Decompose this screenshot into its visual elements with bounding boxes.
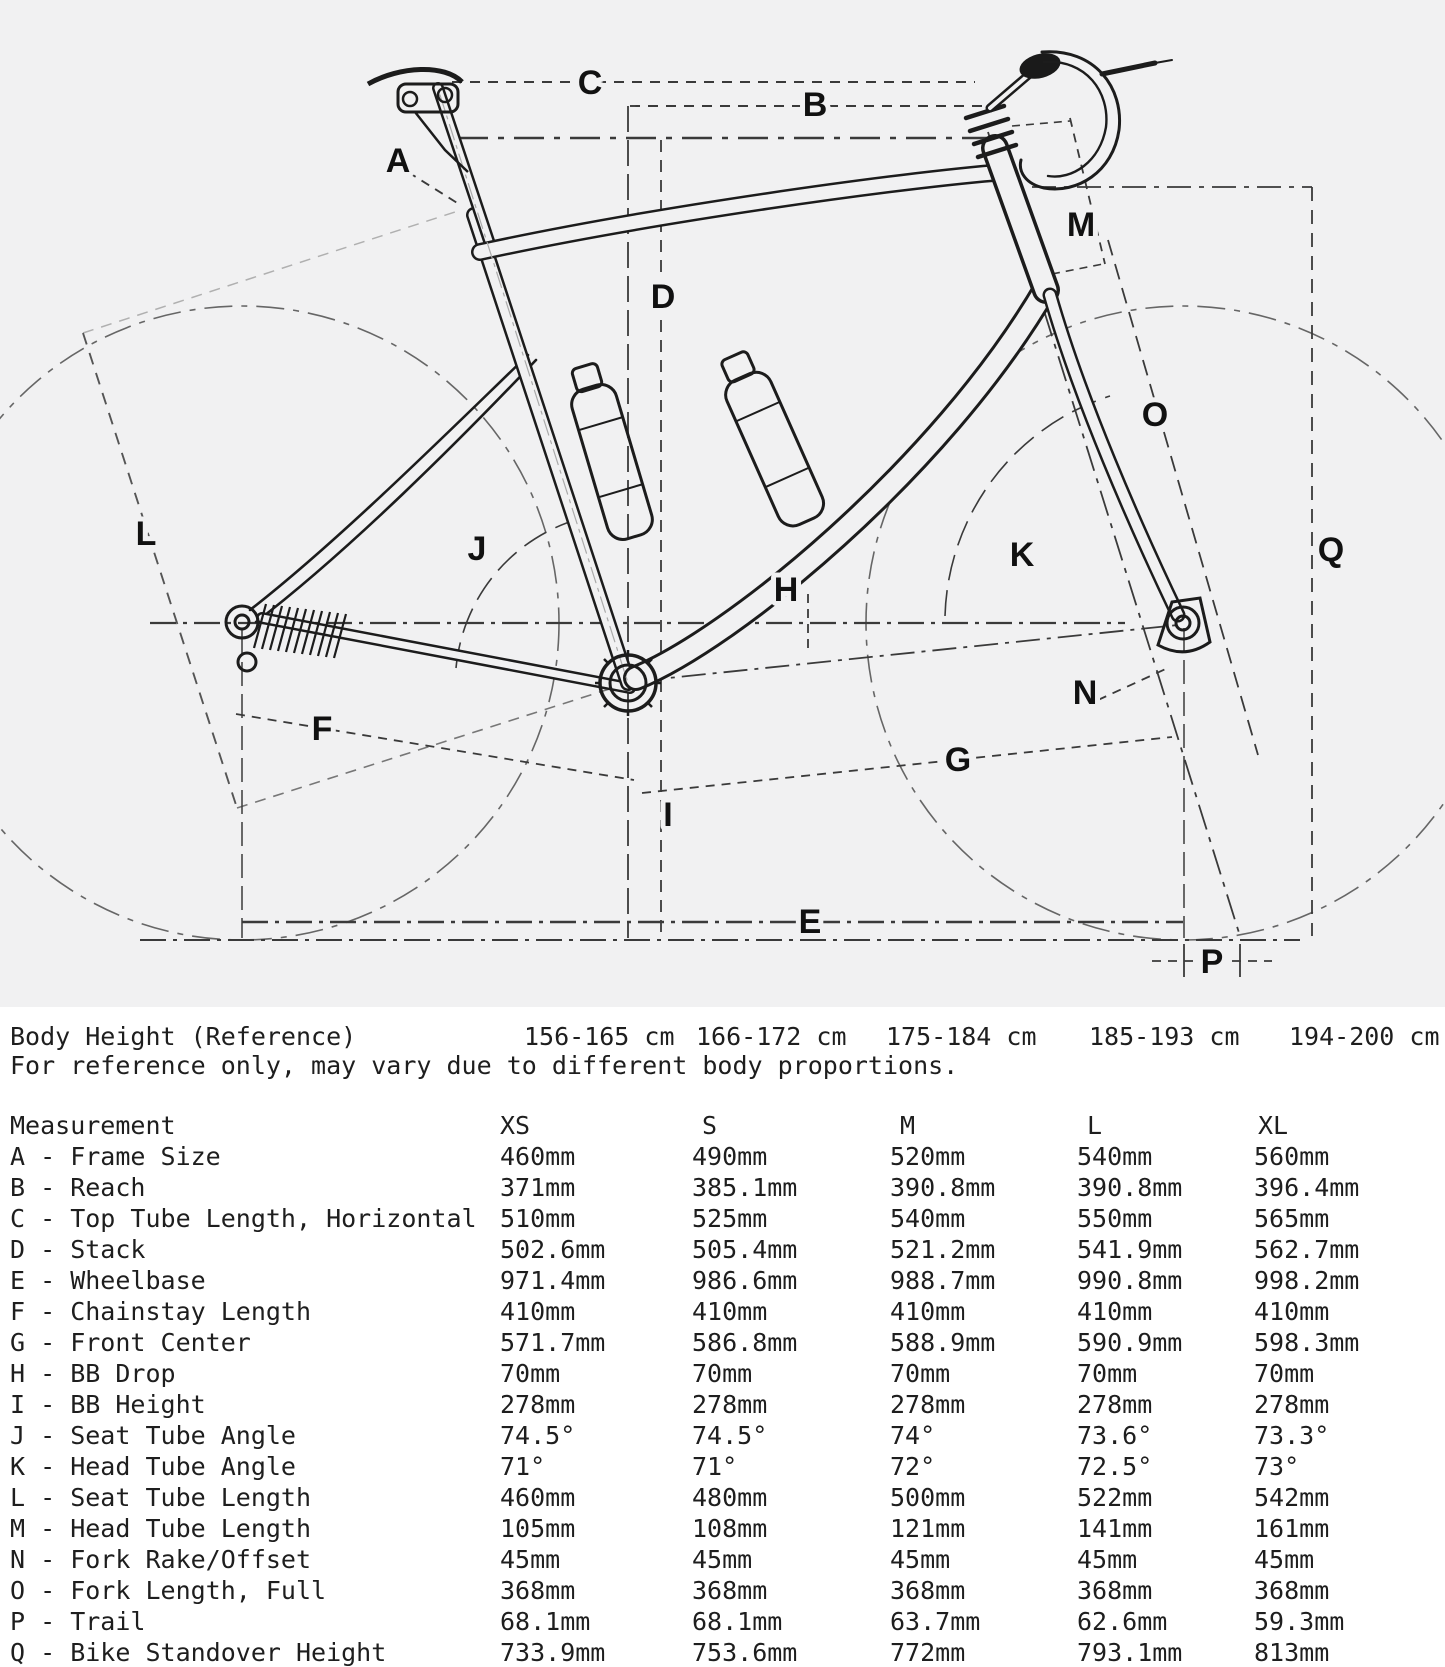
measurement-label: B - Reach bbox=[10, 1172, 145, 1203]
measurement-value: 45mm bbox=[692, 1544, 752, 1575]
measurement-label: I - BB Height bbox=[10, 1389, 206, 1420]
label-Q: Q bbox=[1318, 531, 1344, 569]
measurement-label: A - Frame Size bbox=[10, 1141, 221, 1172]
column-header-size: L bbox=[1087, 1110, 1102, 1141]
measurement-value: 63.7mm bbox=[890, 1606, 980, 1637]
measurement-value: 505.4mm bbox=[692, 1234, 797, 1265]
body-height-value: 175-184 cm bbox=[886, 1021, 1037, 1052]
table-row: Q - Bike Standover Height733.9mm753.6mm7… bbox=[0, 1637, 1445, 1667]
down-tube-bottle bbox=[711, 346, 828, 531]
measurement-label: Q - Bike Standover Height bbox=[10, 1637, 386, 1667]
table-row: O - Fork Length, Full368mm368mm368mm368m… bbox=[0, 1575, 1445, 1606]
label-A: A bbox=[386, 142, 411, 180]
measurement-value: 368mm bbox=[692, 1575, 767, 1606]
label-F: F bbox=[312, 710, 333, 748]
body-height-value: 194-200 cm bbox=[1289, 1021, 1440, 1052]
table-row: B - Reach371mm385.1mm390.8mm390.8mm396.4… bbox=[0, 1172, 1445, 1203]
measurement-value: 772mm bbox=[890, 1637, 965, 1667]
measurement-value: 396.4mm bbox=[1254, 1172, 1359, 1203]
k-arc bbox=[945, 396, 1110, 616]
label-B: B bbox=[803, 86, 828, 124]
table-row: M - Head Tube Length105mm108mm121mm141mm… bbox=[0, 1513, 1445, 1544]
measurement-label: M - Head Tube Length bbox=[10, 1513, 311, 1544]
seat-tube bbox=[474, 215, 628, 683]
measurement-label: H - BB Drop bbox=[10, 1358, 176, 1389]
rear-hub bbox=[226, 606, 258, 671]
shifter-lever bbox=[1102, 63, 1155, 74]
measurement-label: E - Wheelbase bbox=[10, 1265, 206, 1296]
measurement-value: 70mm bbox=[692, 1358, 752, 1389]
label-L: L bbox=[136, 515, 157, 553]
measurement-value: 480mm bbox=[692, 1482, 767, 1513]
l-box-top bbox=[83, 212, 455, 333]
measurement-value: 278mm bbox=[1254, 1389, 1329, 1420]
measurement-label: N - Fork Rake/Offset bbox=[10, 1544, 311, 1575]
measurement-value: 73.3° bbox=[1254, 1420, 1329, 1451]
measurement-value: 70mm bbox=[1254, 1358, 1314, 1389]
measurement-value: 541.9mm bbox=[1077, 1234, 1182, 1265]
measurement-value: 510mm bbox=[500, 1203, 575, 1234]
table-header-row: MeasurementXSSMLXL bbox=[0, 1110, 1445, 1141]
label-H: H bbox=[774, 571, 799, 609]
down-tube bbox=[636, 288, 1046, 678]
label-I: I bbox=[663, 796, 672, 834]
column-header-measurement: Measurement bbox=[10, 1110, 176, 1141]
top-tube bbox=[480, 172, 1005, 252]
handlebar-inner bbox=[1044, 62, 1106, 177]
measurement-value: 74.5° bbox=[692, 1420, 767, 1451]
table-row: F - Chainstay Length410mm410mm410mm410mm… bbox=[0, 1296, 1445, 1327]
measurement-value: 542mm bbox=[1254, 1482, 1329, 1513]
table-row: J - Seat Tube Angle74.5°74.5°74°73.6°73.… bbox=[0, 1420, 1445, 1451]
measurement-value: 108mm bbox=[692, 1513, 767, 1544]
measurement-value: 121mm bbox=[890, 1513, 965, 1544]
measurement-value: 971.4mm bbox=[500, 1265, 605, 1296]
measurement-value: 986.6mm bbox=[692, 1265, 797, 1296]
measurement-value: 71° bbox=[692, 1451, 737, 1482]
measurement-value: 74.5° bbox=[500, 1420, 575, 1451]
table-row: A - Frame Size460mm490mm520mm540mm560mm bbox=[0, 1141, 1445, 1172]
label-O: O bbox=[1142, 396, 1168, 434]
measurement-value: 68.1mm bbox=[692, 1606, 782, 1637]
l-box-bottom bbox=[237, 683, 628, 808]
label-P: P bbox=[1201, 943, 1224, 981]
measurement-value: 73.6° bbox=[1077, 1420, 1152, 1451]
measurement-value: 45mm bbox=[890, 1544, 950, 1575]
measurement-value: 598.3mm bbox=[1254, 1327, 1359, 1358]
measurement-value: 990.8mm bbox=[1077, 1265, 1182, 1296]
measurement-value: 565mm bbox=[1254, 1203, 1329, 1234]
measurement-value: 72.5° bbox=[1077, 1451, 1152, 1482]
measurement-value: 410mm bbox=[692, 1296, 767, 1327]
measurement-value: 278mm bbox=[500, 1389, 575, 1420]
bottles bbox=[562, 346, 829, 543]
measurement-value: 45mm bbox=[500, 1544, 560, 1575]
measurement-value: 460mm bbox=[500, 1482, 575, 1513]
l-box-left bbox=[83, 333, 237, 808]
measurement-value: 70mm bbox=[890, 1358, 950, 1389]
measurement-value: 390.8mm bbox=[890, 1172, 995, 1203]
body-height-value: 156-165 cm bbox=[524, 1021, 675, 1052]
measurement-label: K - Head Tube Angle bbox=[10, 1451, 296, 1482]
measurement-value: 70mm bbox=[500, 1358, 560, 1389]
measurement-value: 521.2mm bbox=[890, 1234, 995, 1265]
table-row: P - Trail68.1mm68.1mm63.7mm62.6mm59.3mm bbox=[0, 1606, 1445, 1637]
measurement-value: 410mm bbox=[1077, 1296, 1152, 1327]
measurement-value: 161mm bbox=[1254, 1513, 1329, 1544]
measurement-value: 368mm bbox=[500, 1575, 575, 1606]
label-J: J bbox=[468, 530, 487, 568]
measurement-value: 74° bbox=[890, 1420, 935, 1451]
table-row: K - Head Tube Angle71°71°72°72.5°73° bbox=[0, 1451, 1445, 1482]
measurement-value: 525mm bbox=[692, 1203, 767, 1234]
measurement-label: F - Chainstay Length bbox=[10, 1296, 311, 1327]
column-header-size: M bbox=[900, 1110, 915, 1141]
measurement-value: 278mm bbox=[890, 1389, 965, 1420]
column-header-size: XL bbox=[1258, 1110, 1288, 1141]
measurement-value: 72° bbox=[890, 1451, 935, 1482]
table-row: H - BB Drop70mm70mm70mm70mm70mm bbox=[0, 1358, 1445, 1389]
measurement-value: 59.3mm bbox=[1254, 1606, 1344, 1637]
measurement-label: D - Stack bbox=[10, 1234, 145, 1265]
m-top-tick bbox=[1012, 121, 1070, 126]
table-row: N - Fork Rake/Offset45mm45mm45mm45mm45mm bbox=[0, 1544, 1445, 1575]
measurement-value: 278mm bbox=[692, 1389, 767, 1420]
measurement-value: 733.9mm bbox=[500, 1637, 605, 1667]
measurement-value: 988.7mm bbox=[890, 1265, 995, 1296]
measurement-value: 385.1mm bbox=[692, 1172, 797, 1203]
measurement-value: 540mm bbox=[1077, 1141, 1152, 1172]
measurement-label: C - Top Tube Length, Horizontal bbox=[10, 1203, 477, 1234]
measurement-label: G - Front Center bbox=[10, 1327, 251, 1358]
measurement-value: 73° bbox=[1254, 1451, 1299, 1482]
a-pointer bbox=[408, 172, 462, 206]
stem bbox=[990, 72, 1032, 108]
rear-derailleur bbox=[238, 653, 256, 671]
measurement-value: 460mm bbox=[500, 1141, 575, 1172]
label-C: C bbox=[578, 64, 603, 102]
measurement-label: J - Seat Tube Angle bbox=[10, 1420, 296, 1451]
measurement-value: 371mm bbox=[500, 1172, 575, 1203]
measurement-value: 410mm bbox=[1254, 1296, 1329, 1327]
measurement-value: 500mm bbox=[890, 1482, 965, 1513]
measurement-value: 71° bbox=[500, 1451, 545, 1482]
bike-line-drawing: A B C D E F G H I J K L M N O P Q bbox=[0, 0, 1445, 1007]
measurement-value: 502.6mm bbox=[500, 1234, 605, 1265]
measurement-value: 62.6mm bbox=[1077, 1606, 1167, 1637]
measurement-value: 586.8mm bbox=[692, 1327, 797, 1358]
table-row: I - BB Height278mm278mm278mm278mm278mm bbox=[0, 1389, 1445, 1420]
measurement-label: L - Seat Tube Length bbox=[10, 1482, 311, 1513]
label-K: K bbox=[1010, 536, 1035, 574]
measurement-value: 520mm bbox=[890, 1141, 965, 1172]
measurement-value: 560mm bbox=[1254, 1141, 1329, 1172]
measurement-value: 571.7mm bbox=[500, 1327, 605, 1358]
measurement-value: 588.9mm bbox=[890, 1327, 995, 1358]
n-pointer bbox=[1098, 667, 1170, 700]
fork bbox=[1050, 295, 1178, 615]
measurement-value: 105mm bbox=[500, 1513, 575, 1544]
measurement-value: 562.7mm bbox=[1254, 1234, 1359, 1265]
label-M: M bbox=[1067, 206, 1095, 244]
measurement-value: 813mm bbox=[1254, 1637, 1329, 1667]
table-row: E - Wheelbase971.4mm986.6mm988.7mm990.8m… bbox=[0, 1265, 1445, 1296]
measurement-value: 368mm bbox=[1077, 1575, 1152, 1606]
measurement-value: 410mm bbox=[890, 1296, 965, 1327]
body-height-value: 185-193 cm bbox=[1089, 1021, 1240, 1052]
measurement-value: 70mm bbox=[1077, 1358, 1137, 1389]
geometry-diagram: A B C D E F G H I J K L M N O P Q bbox=[0, 0, 1445, 1007]
measurement-value: 753.6mm bbox=[692, 1637, 797, 1667]
measurement-value: 45mm bbox=[1077, 1544, 1137, 1575]
measurement-value: 278mm bbox=[1077, 1389, 1152, 1420]
label-D: D bbox=[651, 278, 676, 316]
measurement-value: 540mm bbox=[890, 1203, 965, 1234]
measurement-value: 410mm bbox=[500, 1296, 575, 1327]
measurement-value: 390.8mm bbox=[1077, 1172, 1182, 1203]
seat-stays bbox=[250, 355, 536, 622]
measurement-value: 590.9mm bbox=[1077, 1327, 1182, 1358]
table-row: C - Top Tube Length, Horizontal510mm525m… bbox=[0, 1203, 1445, 1234]
measurement-value: 141mm bbox=[1077, 1513, 1152, 1544]
table-row: D - Stack502.6mm505.4mm521.2mm541.9mm562… bbox=[0, 1234, 1445, 1265]
table-row: G - Front Center571.7mm586.8mm588.9mm590… bbox=[0, 1327, 1445, 1358]
measurement-value: 490mm bbox=[692, 1141, 767, 1172]
saddle-rail-bolt-left bbox=[403, 92, 417, 106]
measurement-value: 368mm bbox=[890, 1575, 965, 1606]
body-height-label: Body Height (Reference) bbox=[10, 1021, 356, 1052]
f-line bbox=[236, 714, 634, 780]
bike-geometry-sheet: A B C D E F G H I J K L M N O P Q Body H… bbox=[0, 0, 1445, 1667]
body-height-value: 166-172 cm bbox=[696, 1021, 847, 1052]
measurement-value: 368mm bbox=[1254, 1575, 1329, 1606]
measurement-value: 45mm bbox=[1254, 1544, 1314, 1575]
g-line bbox=[642, 737, 1172, 793]
label-G: G bbox=[945, 741, 971, 779]
measurement-value: 522mm bbox=[1077, 1482, 1152, 1513]
measurement-label: O - Fork Length, Full bbox=[10, 1575, 326, 1606]
measurement-value: 998.2mm bbox=[1254, 1265, 1359, 1296]
table-row: L - Seat Tube Length460mm480mm500mm522mm… bbox=[0, 1482, 1445, 1513]
m-bottom-tick bbox=[1052, 264, 1103, 274]
measurement-value: 793.1mm bbox=[1077, 1637, 1182, 1667]
body-height-note: For reference only, may vary due to diff… bbox=[10, 1050, 958, 1081]
measurement-value: 68.1mm bbox=[500, 1606, 590, 1637]
label-E: E bbox=[799, 903, 822, 941]
measurement-value: 550mm bbox=[1077, 1203, 1152, 1234]
column-header-size: S bbox=[702, 1110, 717, 1141]
saddle-top bbox=[368, 69, 462, 84]
body-height-row: Body Height (Reference) 156-165 cm166-17… bbox=[0, 1021, 1445, 1052]
measurement-label: P - Trail bbox=[10, 1606, 145, 1637]
label-N: N bbox=[1073, 674, 1098, 712]
brake-cable bbox=[1155, 60, 1172, 63]
column-header-size: XS bbox=[500, 1110, 530, 1141]
